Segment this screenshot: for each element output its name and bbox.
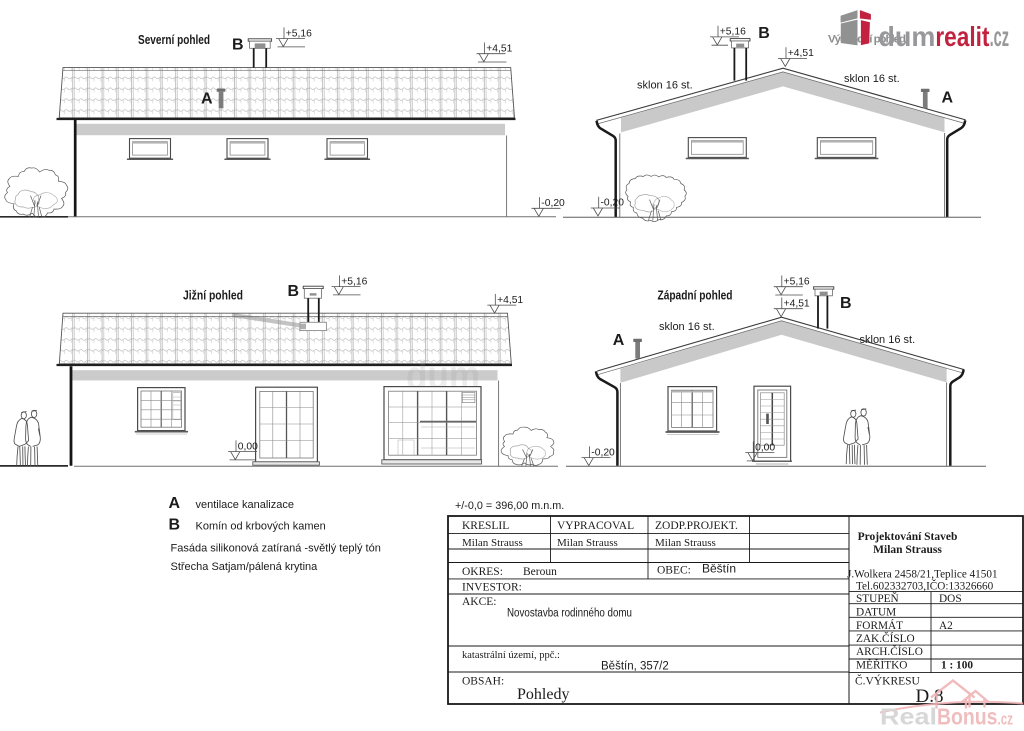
svg-text:B: B — [169, 517, 181, 534]
svg-text:sklon 16 st.: sklon 16 st. — [659, 321, 715, 333]
svg-text:.cz: .cz — [990, 21, 1010, 52]
svg-text:+4,51: +4,51 — [486, 43, 512, 54]
svg-text:Komín od krbových kamen: Komín od krbových kamen — [196, 521, 326, 533]
svg-text:sklon 16 st.: sklon 16 st. — [860, 334, 916, 346]
svg-text:+5,16: +5,16 — [341, 276, 367, 287]
svg-text:OKRES:: OKRES: — [462, 566, 503, 578]
svg-text:Milan Strauss: Milan Strauss — [557, 537, 618, 549]
svg-text:Bonus: Bonus — [937, 704, 998, 730]
svg-text:sklon 16 st.: sklon 16 st. — [637, 80, 693, 92]
svg-text:A2: A2 — [939, 620, 953, 632]
svg-text:A: A — [201, 91, 213, 108]
svg-text:Projektování Staveb: Projektování Staveb — [858, 531, 958, 543]
svg-text:-0,20: -0,20 — [591, 447, 615, 458]
svg-text:+5,16: +5,16 — [720, 27, 746, 38]
svg-text:ZODP.PROJEKT.: ZODP.PROJEKT. — [655, 520, 738, 532]
svg-text:FORMÁT: FORMÁT — [856, 620, 903, 632]
svg-text:Real: Real — [880, 704, 937, 730]
svg-text:MĚŘÍTKO: MĚŘÍTKO — [856, 659, 907, 671]
svg-text:A: A — [613, 332, 625, 349]
svg-text:OBEC:: OBEC: — [657, 565, 691, 577]
svg-text:Novostavba rodinného domu: Novostavba rodinného domu — [507, 608, 632, 620]
svg-text:Milan Strauss: Milan Strauss — [462, 537, 523, 549]
svg-text:VYPRACOVAL: VYPRACOVAL — [557, 520, 634, 532]
svg-text:AKCE:: AKCE: — [462, 596, 497, 608]
svg-text:ZAK.ČÍSLO: ZAK.ČÍSLO — [856, 633, 915, 645]
svg-text:Běštín, 357/2: Běštín, 357/2 — [601, 661, 669, 673]
svg-text:+4,51: +4,51 — [784, 298, 810, 309]
svg-text:B: B — [232, 37, 244, 54]
svg-text:Střecha Satjam/pálená krytina: Střecha Satjam/pálená krytina — [171, 561, 319, 573]
svg-text:B: B — [288, 283, 300, 300]
svg-text:B: B — [840, 295, 852, 312]
svg-text:.cz: .cz — [998, 710, 1014, 729]
svg-text:dum: dum — [878, 21, 935, 52]
svg-text:Č.VÝKRESU: Č.VÝKRESU — [855, 674, 921, 688]
svg-text:+/-0,0 = 396,00 m.n.m.: +/-0,0 = 396,00 m.n.m. — [455, 500, 564, 512]
svg-text:+4,51: +4,51 — [788, 48, 814, 59]
svg-text:INVESTOR:: INVESTOR: — [462, 582, 522, 594]
svg-text:DATUM: DATUM — [856, 606, 896, 618]
svg-text:A: A — [169, 495, 181, 512]
svg-text:Jižní pohled: Jižní pohled — [183, 289, 243, 303]
svg-text:J.Wolkera 2458/21,Teplice 4150: J.Wolkera 2458/21,Teplice 41501 — [847, 569, 998, 581]
svg-text:-0,20: -0,20 — [601, 198, 625, 209]
svg-text:0,00: 0,00 — [238, 441, 258, 452]
svg-text:Západní pohled: Západní pohled — [658, 289, 733, 303]
svg-text:1 : 100: 1 : 100 — [941, 659, 973, 671]
svg-text:0,00: 0,00 — [755, 442, 775, 453]
svg-text:ARCH.ČÍSLO: ARCH.ČÍSLO — [856, 646, 923, 658]
svg-text:STUPEŇ: STUPEŇ — [856, 593, 899, 605]
svg-text:Beroun: Beroun — [523, 566, 557, 578]
svg-text:B: B — [758, 25, 770, 42]
svg-text:+5,16: +5,16 — [784, 276, 810, 287]
svg-text:Milan Strauss: Milan Strauss — [655, 537, 716, 549]
svg-text:realit: realit — [935, 21, 989, 52]
svg-text:A: A — [942, 90, 954, 107]
svg-text:+5,16: +5,16 — [286, 28, 312, 39]
svg-text:Běštín: Běštín — [702, 562, 736, 576]
svg-text:katastrální území, ppč.:: katastrální území, ppč.: — [462, 650, 560, 661]
svg-text:Milan Strauss: Milan Strauss — [873, 544, 942, 556]
svg-text:-0,20: -0,20 — [541, 198, 565, 209]
svg-text:Pohledy: Pohledy — [517, 686, 569, 703]
svg-text:sklon 16 st.: sklon 16 st. — [844, 73, 900, 85]
svg-text:DOS: DOS — [939, 593, 962, 605]
svg-text:ventilace kanalizace: ventilace kanalizace — [196, 499, 294, 511]
svg-text:KRESLIL: KRESLIL — [462, 520, 509, 532]
svg-text:Tel.602332703,IČO:13326660: Tel.602332703,IČO:13326660 — [856, 580, 994, 592]
svg-text:+4,51: +4,51 — [497, 295, 523, 306]
svg-text:OBSAH:: OBSAH: — [462, 676, 504, 688]
svg-text:Severní pohled: Severní pohled — [138, 33, 210, 47]
svg-text:Fasáda silikonová zatíraná -sv: Fasáda silikonová zatíraná -světlý teplý… — [171, 543, 381, 555]
